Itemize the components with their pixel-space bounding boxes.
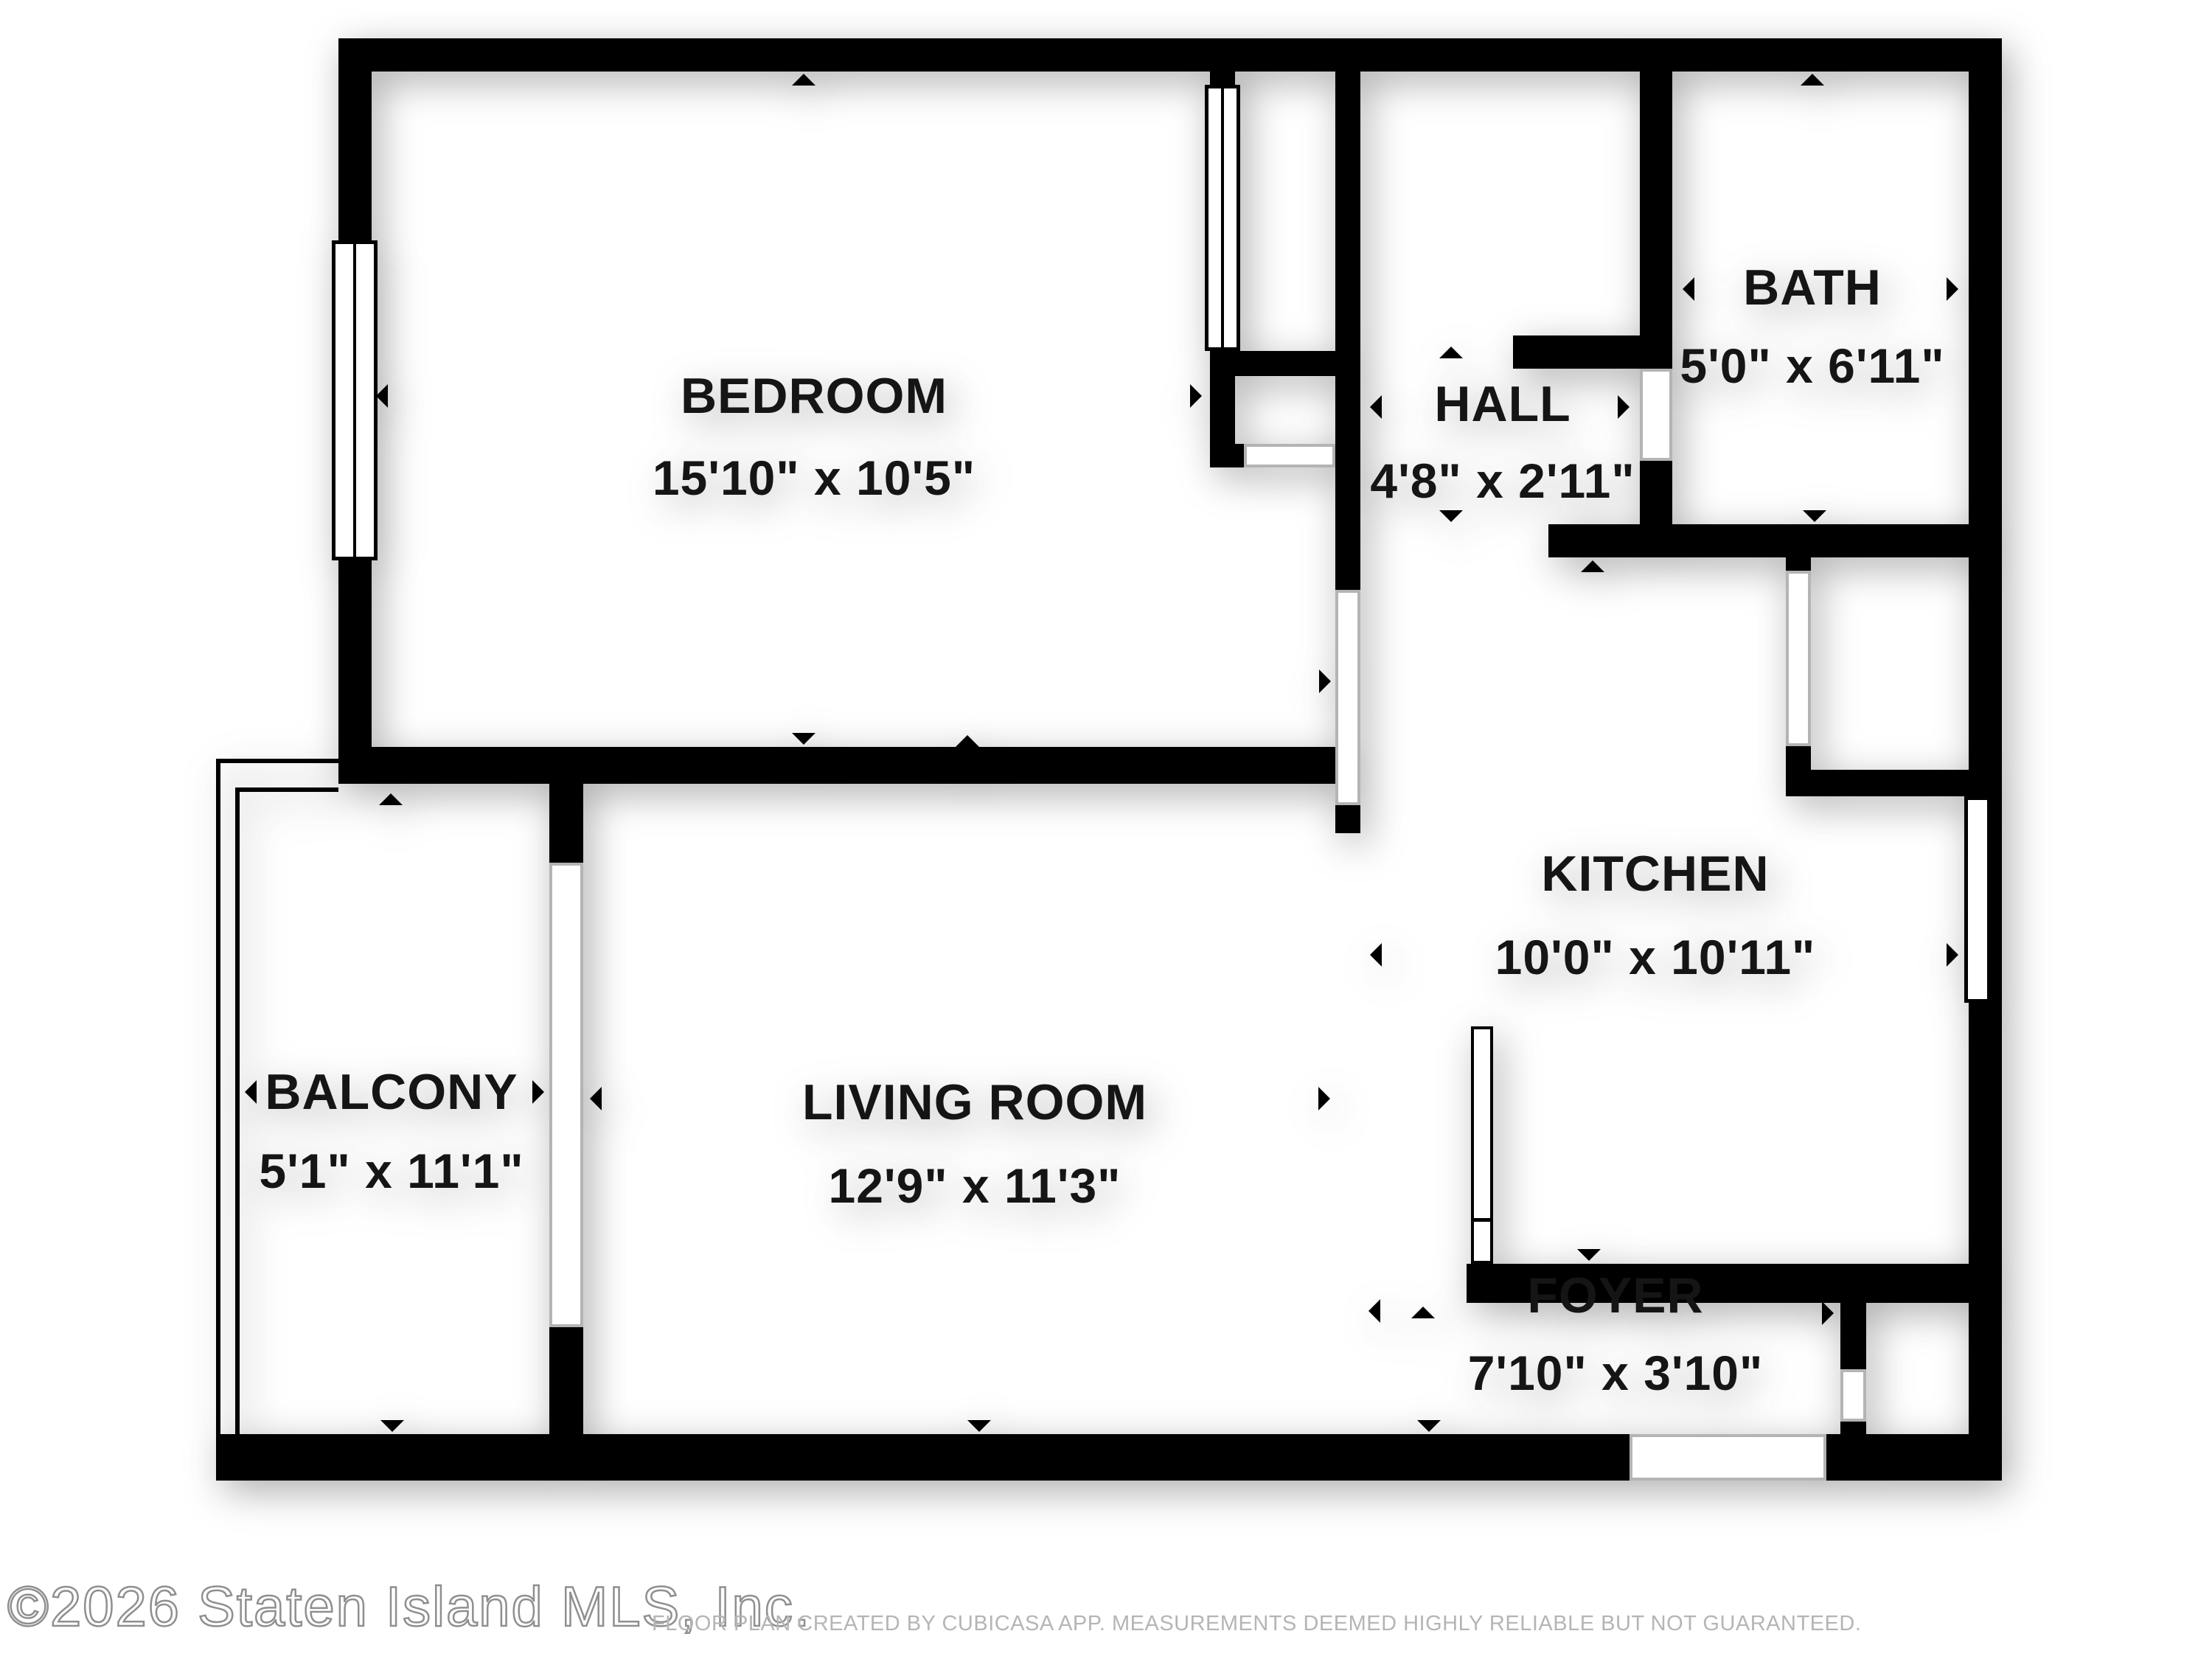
bath-arrow-right — [1947, 277, 1958, 301]
room-dimensions-balcony: 5'1" x 11'1" — [259, 1143, 524, 1199]
glass-strip-cap-wall — [1210, 72, 1235, 85]
living-arrow-right — [1318, 1087, 1330, 1110]
hall-arrow-down — [1439, 510, 1463, 522]
balcony-rail-outer-left — [216, 759, 220, 1481]
balcony-arrow-right — [532, 1080, 544, 1104]
kitchen-arrow-up — [1581, 560, 1604, 572]
living-arrow-down — [967, 1420, 991, 1432]
room-label-balcony: BALCONY — [265, 1063, 518, 1121]
linen-door-icon — [1786, 571, 1811, 746]
linen-stub-top-wall — [1786, 557, 1811, 571]
room-dimensions-kitchen: 10'0" x 10'11" — [1495, 929, 1816, 985]
kitchen-arrow-left — [1370, 943, 1382, 967]
kitchen-arrow-down — [1577, 1249, 1601, 1261]
closet-top-wall — [1210, 351, 1360, 376]
floor-plan-canvas: BEDROOM15'10" x 10'5"BATH5'0" x 6'11"HAL… — [0, 0, 2212, 1659]
closet-door-icon — [1244, 444, 1335, 467]
bedroom-arrow-right — [1190, 384, 1202, 408]
balcony-arrow-down — [380, 1420, 404, 1432]
bath-left-lower-wall — [1640, 461, 1672, 524]
hall-doorway-icon — [1335, 590, 1360, 805]
balcony-arrow-left — [245, 1080, 257, 1104]
outer-left-upper-wall — [338, 38, 372, 240]
room-dimensions-bedroom: 15'10" x 10'5" — [653, 450, 975, 506]
balcony-rail-inner-left — [235, 787, 240, 1434]
foyer-arrow-down — [1417, 1420, 1441, 1432]
bath-arrow-left — [1683, 277, 1694, 301]
outer-top-wall — [338, 38, 2002, 72]
room-label-living-room: LIVING ROOM — [802, 1074, 1147, 1131]
bath-left-upper-wall — [1640, 72, 1672, 335]
linen-stub-bottom-wall — [1786, 746, 1811, 770]
room-label-foyer: FOYER — [1527, 1267, 1703, 1324]
kitchen-counter-divider — [1471, 1218, 1493, 1222]
balcony-divider-bot-wall — [549, 1327, 583, 1434]
bath-door-icon — [1640, 369, 1672, 461]
bedroom-window-icon — [332, 240, 378, 560]
floor-plan: BEDROOM15'10" x 10'5"BATH5'0" x 6'11"HAL… — [0, 0, 2212, 1659]
kitchen-window-icon — [1964, 796, 1991, 1003]
bath-arrow-up — [1801, 74, 1824, 86]
bedroom-window-centerline — [353, 244, 356, 557]
living-arrow-left — [590, 1087, 602, 1110]
bedroom-arrow-up — [792, 74, 815, 86]
balcony-slider-icon — [549, 863, 583, 1327]
room-dimensions-foyer: 7'10" x 3'10" — [1468, 1345, 1764, 1401]
living-arrow-up — [956, 735, 979, 747]
bedroom-bottom-wall — [338, 747, 1335, 784]
bedroom-arrow-down — [792, 733, 815, 745]
hall-top-wall — [1513, 335, 1672, 369]
bath-arrow-down — [1803, 510, 1826, 522]
hall-arrow-up — [1439, 347, 1463, 358]
closet-bottom-stub-wall — [1210, 444, 1244, 467]
foyer-arrow-left — [1368, 1299, 1380, 1323]
room-label-bedroom: BEDROOM — [681, 367, 947, 425]
entry-door-icon — [1630, 1434, 1826, 1481]
doorway-arrow-right — [1319, 669, 1331, 693]
hall-bath-bottom-wall — [1548, 524, 2002, 557]
room-label-hall: HALL — [1434, 375, 1571, 433]
footer-disclaimer: FLOOR PLAN CREATED BY CUBICASA APP. MEAS… — [652, 1612, 1861, 1636]
room-dimensions-living-room: 12'9" x 11'3" — [829, 1158, 1121, 1214]
linen-bottom-wall — [1786, 770, 1970, 796]
hall-left-stub-wall — [1335, 805, 1360, 833]
room-dimensions-hall: 4'8" x 2'11" — [1370, 453, 1635, 509]
foyer-closet-lower-wall — [1840, 1422, 1866, 1436]
balcony-arrow-up — [379, 793, 403, 805]
balcony-rail-outer-top — [216, 759, 338, 763]
kitchen-arrow-right — [1947, 943, 1958, 967]
hall-left-wall — [1335, 72, 1360, 590]
glass-strip-centerline — [1221, 88, 1224, 347]
room-label-kitchen: KITCHEN — [1541, 845, 1769, 902]
bedroom-arrow-left — [376, 384, 388, 408]
kitchen-counter-icon — [1471, 1026, 1493, 1264]
foyer-closet-upper-wall — [1840, 1303, 1866, 1369]
balcony-divider-top-wall — [549, 784, 583, 863]
outer-right-wall — [1969, 38, 2002, 1481]
foyer-arrow-right — [1822, 1301, 1834, 1325]
room-label-bath: BATH — [1743, 259, 1882, 316]
hall-arrow-left — [1370, 395, 1382, 419]
glass-strip-icon — [1205, 85, 1240, 351]
balcony-rail-inner-top — [235, 787, 338, 792]
foyer-arrow-up — [1411, 1307, 1435, 1318]
room-dimensions-bath: 5'0" x 6'11" — [1680, 338, 1944, 394]
hall-arrow-right — [1618, 395, 1630, 419]
foyer-closet-door-icon — [1840, 1369, 1866, 1422]
